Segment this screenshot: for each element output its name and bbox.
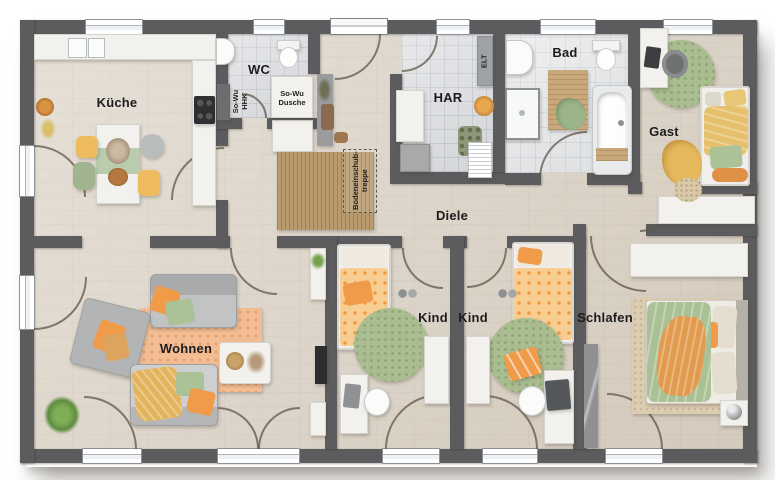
bathtub-tray: [596, 148, 628, 161]
pillow-gast-orange: [712, 168, 748, 182]
pie-plate: [108, 168, 128, 186]
window-kueche-top: [85, 19, 143, 35]
speaker-sphere: [726, 404, 742, 420]
hanging-bag: [321, 104, 334, 130]
wardrobe-kind1: [424, 336, 449, 404]
laptop-kind1: [343, 383, 361, 409]
window-bad-top: [540, 19, 596, 35]
chair-kind1: [364, 388, 390, 416]
elt-label: ELT: [473, 46, 497, 76]
entrance-door: [330, 18, 388, 35]
pillow-gast-white: [705, 92, 721, 106]
woven-basket: [674, 178, 702, 202]
shower-label: So-WuDusche: [271, 90, 313, 107]
tv-board-bottom: [310, 402, 326, 436]
room-label-diele: Diele: [417, 208, 487, 223]
wall-schlafen-north: [646, 224, 757, 236]
kitchen-counter-right: [192, 60, 216, 206]
room-label-har: HAR: [418, 90, 478, 105]
bathtub-faucet: [618, 120, 624, 126]
plant-on-board: [310, 252, 326, 270]
dried-flowers: [318, 78, 331, 102]
toy-mobile-kind2: [496, 287, 518, 300]
room-label-bad: Bad: [535, 45, 595, 60]
pillow-gast-yellow: [723, 89, 747, 108]
room-label-wc: WC: [239, 62, 279, 77]
bad-toilet-bowl: [596, 48, 616, 71]
wall-bad-south-left: [505, 173, 541, 185]
sofa2-pillow-orange: [186, 388, 216, 417]
pillow-schlafen-2: [711, 351, 738, 395]
radiator-label: So-WuHHK: [228, 80, 254, 124]
window-har-top: [436, 19, 470, 35]
dried-plant-table: [246, 350, 266, 374]
window-kind1-bottom: [382, 448, 440, 464]
chair-kind2: [518, 386, 546, 416]
dried-grass-decor: [40, 118, 56, 140]
plant-wohnen: [44, 396, 80, 434]
table-centerpiece: [106, 138, 130, 164]
wardrobe-kind2: [466, 336, 490, 404]
window-wohnen-bottom-double: [217, 448, 300, 464]
window-gast-top: [663, 19, 713, 35]
room-label-schlafen: Schlafen: [560, 310, 650, 325]
window-kind2-bottom: [482, 448, 538, 464]
wall-kueche-south: [150, 236, 230, 248]
chair-yellow-2: [138, 170, 160, 196]
room-label-gast: Gast: [634, 124, 694, 139]
wall-outer-left: [20, 20, 34, 463]
har-cabinet: [400, 144, 430, 172]
wall-kind1-kind2: [450, 236, 464, 449]
pillow-kind1: [341, 247, 387, 267]
chair-yellow-1: [76, 136, 98, 158]
pillow-gast-green: [709, 145, 743, 170]
window-wohnen-left: [19, 275, 35, 330]
chair-green: [73, 162, 95, 190]
hall-sideboard: [658, 196, 755, 224]
fruit-basket: [36, 98, 54, 116]
slippers: [334, 132, 348, 143]
wall-wc-east: [308, 34, 320, 74]
window-wc-top: [253, 19, 285, 35]
wall-wohnen-kind1: [325, 236, 337, 449]
room-label-kueche: Küche: [77, 95, 157, 110]
kitchen-sink-basin-left: [68, 38, 87, 58]
window-wohnen-bottom-left: [82, 448, 142, 464]
cooktop: [194, 96, 215, 124]
drying-rack: [468, 142, 492, 178]
chair-gray: [140, 134, 164, 158]
attic-hatch-outline: Bodeneinschub-treppe: [343, 149, 377, 213]
toy-mobile-kind1: [396, 287, 418, 300]
laptop-gast: [644, 46, 662, 69]
armchair-pillow-ochre: [102, 332, 131, 362]
tv: [315, 346, 327, 384]
headboard-schlafen: [736, 300, 748, 404]
window-kueche-left: [19, 145, 35, 197]
monitor-kind2: [545, 379, 572, 411]
window-schlafen-bottom: [605, 448, 663, 464]
kitchen-counter-top: [34, 34, 216, 60]
wall-wohnen-north-left: [34, 236, 82, 248]
room-label-kind2: Kind: [443, 310, 503, 325]
wall-gast-south-left: [628, 182, 642, 194]
toilet-bowl: [279, 47, 298, 68]
room-label-wohnen: Wohnen: [146, 341, 226, 356]
towel-green: [556, 98, 586, 130]
bad-sink: [506, 40, 533, 75]
floor-plan: So-WuHHK So-WuDusche Bodeneinschub-trepp…: [0, 0, 775, 480]
standing-mirror: [584, 344, 598, 448]
office-chair-gast: [662, 50, 688, 78]
tray-round: [226, 352, 244, 370]
kitchen-sink-basin-right: [88, 38, 105, 58]
shower-drain: [519, 110, 525, 116]
pillow-kind2-orange: [517, 246, 543, 265]
wardrobe-schlafen: [630, 243, 748, 277]
sofa-pillow-green: [164, 298, 196, 326]
shower-cabinet: [272, 120, 313, 152]
